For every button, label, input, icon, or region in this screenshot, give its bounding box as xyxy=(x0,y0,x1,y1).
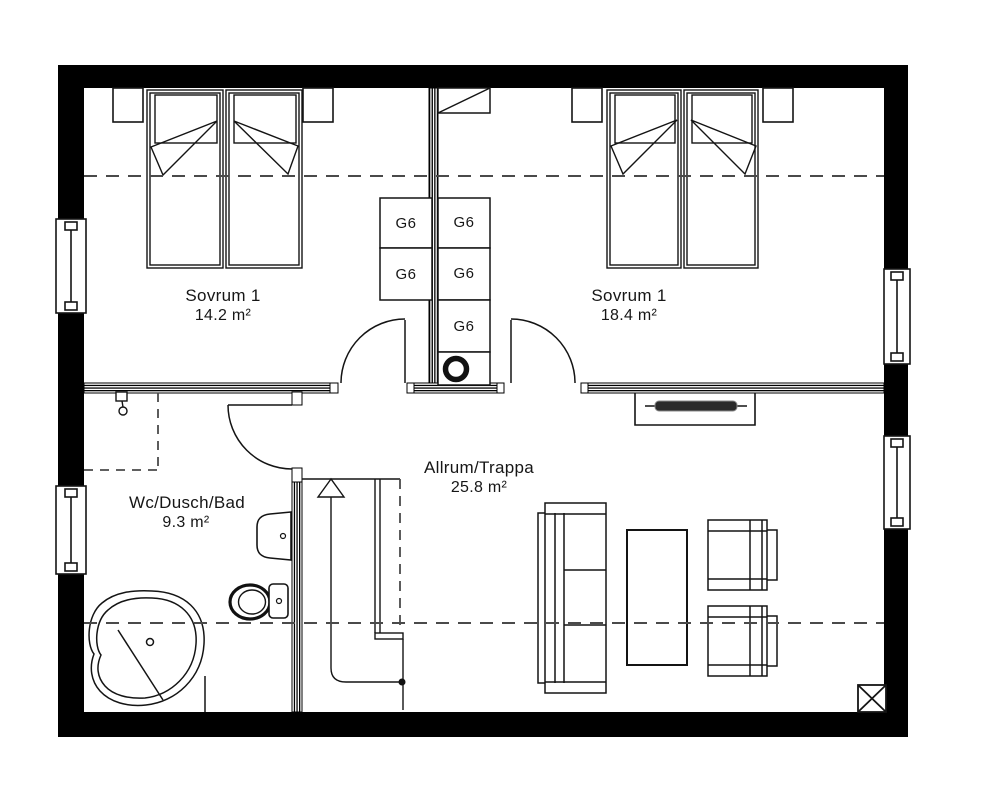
shower-zone-line xyxy=(84,393,158,470)
wardrobe-icon xyxy=(438,88,490,113)
chimney-icon xyxy=(858,685,886,712)
closet-label: G6 xyxy=(444,317,484,337)
stairs-direction-arrow-icon xyxy=(318,479,344,497)
toilet-icon xyxy=(230,584,288,619)
bed-icon xyxy=(147,90,302,268)
room-label-bedroom-left: Sovrum 1 xyxy=(113,286,333,306)
room-label-bedroom-right: Sovrum 1 xyxy=(519,286,739,306)
door-icon xyxy=(228,319,575,469)
floorplan-drawing xyxy=(0,0,992,804)
room-area-bath: 9.3 m² xyxy=(76,513,296,533)
bed-icon xyxy=(607,90,758,268)
floorplan-canvas: Sovrum 1 14.2 m² Sovrum 1 18.4 m² Allrum… xyxy=(0,0,992,804)
room-label-living: Allrum/Trappa xyxy=(369,458,589,478)
shower-icon xyxy=(116,392,127,415)
closet-label: G6 xyxy=(444,264,484,284)
coffee-table-icon xyxy=(627,530,687,665)
closet-label: G6 xyxy=(444,213,484,233)
radiator-icon xyxy=(635,393,755,425)
closet-label: G6 xyxy=(386,265,426,285)
closet-label: G6 xyxy=(386,214,426,234)
stairs-walkline-start xyxy=(399,679,406,686)
armchair-icon xyxy=(708,520,777,590)
room-label-bath: Wc/Dusch/Bad xyxy=(77,493,297,513)
room-area-bedroom-left: 14.2 m² xyxy=(113,306,333,326)
sofa-icon xyxy=(538,503,606,693)
room-area-living: 25.8 m² xyxy=(369,478,589,498)
bathtub-icon xyxy=(89,591,205,712)
armchair-icon xyxy=(708,606,777,676)
stairs-icon xyxy=(302,479,406,710)
room-area-bedroom-right: 18.4 m² xyxy=(519,306,739,326)
